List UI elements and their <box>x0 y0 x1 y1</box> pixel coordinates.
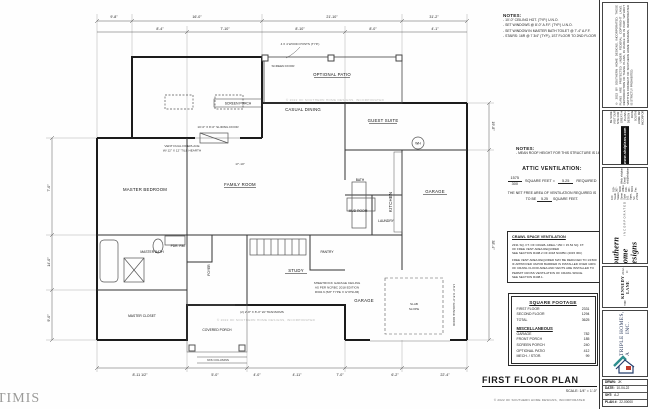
square-footage-title: SQUARE FOOTAGE <box>517 300 590 305</box>
note-sliding-door: 10'-0" X 8'-0" SLIDING DOOR <box>197 125 239 129</box>
watermark-text: © 2022 OF SOUTHERN HOME DESIGNS, INCORPO… <box>217 318 316 322</box>
water-heater-label: WH <box>415 142 421 146</box>
dim-label: 31'-2" <box>429 15 439 19</box>
info-value: A-2 <box>614 394 619 398</box>
dim-label: 7'-0" <box>336 373 344 377</box>
room-label-guest-suite: GUEST SUITE <box>368 118 399 123</box>
dimension-labels: 9'-8" 16'-0" 21'-10" 31'-2" 8'-4" 7'-10"… <box>47 15 495 377</box>
kitchen-island <box>352 182 366 228</box>
note-screen-door: SCREEN DOOR <box>271 64 295 68</box>
master-tub <box>100 240 118 282</box>
project-line-1: THE <box>623 300 627 306</box>
room-label-study: STUDY <box>288 268 304 273</box>
attic-denominator: 300 <box>512 182 518 187</box>
crawl-paragraph: FREE VENT AREA REQUIRED MAY BE REDUCED T… <box>512 258 598 275</box>
info-label: PLAN #: <box>605 401 617 405</box>
interior-walls <box>97 103 467 305</box>
sqft-value: 99 <box>586 354 590 360</box>
sqft-label: TOTAL <box>517 318 528 324</box>
notes-block-top: NOTES: - 10'-0" CEILING HGT. (TYP.) U.N.… <box>503 13 598 39</box>
info-row: PLAN #: 22-00000 <box>603 399 647 406</box>
room-label-kitchen: KITCHEN <box>388 192 393 212</box>
room-label-master-bedroom: MASTER BEDROOM <box>123 187 167 192</box>
attic-net-text-2: SQUARE FEET. <box>553 197 578 201</box>
note-posts: 4 X 4 WOOD POSTS (TYP.) <box>281 42 320 46</box>
attic-fraction: 1575 300 <box>508 176 522 186</box>
room-label-screen-porch: SCREEN PORCH <box>225 102 252 106</box>
note-garage-door: 18'-0" X 8'-0" GARAGE DOOR <box>452 284 456 327</box>
attic-net-value: 5.25 <box>537 197 552 202</box>
designer-address-1: 100 South Salem Street Suite 101 Apex, N… <box>611 193 639 200</box>
sqft-row: MECH. / STOR. 99 <box>517 354 590 360</box>
square-footage-box: SQUARE FOOTAGE FIRST FLOOR 2331 SECOND F… <box>508 293 598 366</box>
note-sheetrock-2: AS PER NCRBC 2018 EDITION <box>315 286 359 290</box>
kitchen-counter <box>394 152 402 232</box>
room-label-optional-patio: OPTIONAL PATIO <box>313 72 351 77</box>
room-label-powder: PDR. RM. <box>171 244 186 248</box>
note-transoms: (2) 2'-8" X 8'-0" W/ TRANSOMS <box>240 310 284 314</box>
sheet-title: FIRST FLOOR PLAN <box>482 375 597 387</box>
room-label-laundry: LAUNDRY <box>378 219 394 223</box>
sheet-copyright: © 2022 OF SOUTHERN HOME DESIGNS, INCORPO… <box>482 398 597 402</box>
room-label-pantry: PANTRY <box>320 250 334 254</box>
note-item: - STAIRS: 16R @ 7 3/4" (TYP.), 1ST FLOOR… <box>503 34 598 39</box>
dim-label: 6'-2" <box>391 373 399 377</box>
attic-calc-label: SQUARE FEET = <box>525 179 555 183</box>
room-label-master-closet: MASTER CLOSET <box>128 314 156 318</box>
room-label-garage: GARAGE <box>425 189 445 194</box>
slab-slope-area <box>385 278 443 334</box>
dim-label: 16'-0" <box>192 15 202 19</box>
note-slab-1: SLAB <box>410 302 418 306</box>
info-row: DATE: 10-04-22 <box>603 385 647 392</box>
crawl-space-ventilation-box: CRAWL SPACE VENTILATION 2331 SQ. FT. OF … <box>507 231 603 283</box>
dim-label: 8'-11 1/2" <box>133 373 149 377</box>
note-fireplace-1: VENT DUAL FIREPLACE <box>164 144 199 148</box>
room-label-covered-porch: COVERED PORCH <box>202 328 232 332</box>
crawl-line-4: SEE SECTION R408.1. <box>512 275 598 279</box>
dim-label: 7'-10" <box>220 27 230 31</box>
dim-label: 9'-0" <box>47 314 51 322</box>
attic-ventilation-block: ATTIC VENTILATION: 1575 300 SQUARE FEET … <box>507 166 597 203</box>
corner-watermark: TIMIS <box>0 391 40 407</box>
sqft-row: TOTAL 3625 <box>517 318 590 324</box>
attic-result: 5.25 <box>558 179 573 184</box>
room-labels: SCREEN PORCH OPTIONAL PATIO CASUAL DININ… <box>123 72 447 332</box>
room-label-family-room: FAMILY ROOM <box>224 182 256 187</box>
sqft-label: MECH. / STOR. <box>517 354 542 360</box>
plan-annotations: 4 X 4 WOOD POSTS (TYP.) SCREEN DOOR 10'-… <box>163 42 456 362</box>
drawing-sheet: 9'-8" 16'-0" 21'-10" 31'-2" 8'-4" 7'-10"… <box>0 0 650 409</box>
website-box: Hey, visit us @ www.shdplans.com BE SURE… <box>602 110 648 165</box>
dim-label: 19'-8" <box>491 121 495 131</box>
dim-label: 9'-8" <box>110 15 118 19</box>
info-label: SHT: <box>605 394 612 398</box>
designer-logo-text: Southern Home Designs <box>612 237 639 264</box>
note-slab-2: SLOPE <box>409 307 419 311</box>
note-sheetrock-1: SHEETROCK GARAGE CEILING <box>314 281 361 285</box>
attic-ventilation-calc: 1575 300 SQUARE FEET = 5.25 REQUIRED <box>507 176 597 186</box>
info-value: 22-00000 <box>619 401 632 405</box>
note-fireplace-2: W/ 12" X 12" TILE HEARTH <box>163 149 201 153</box>
porch-column <box>239 345 245 351</box>
room-label-foyer: FOYER <box>207 264 211 276</box>
note-columns: 6X6 COLUMNS <box>207 358 229 362</box>
dim-label: 38'-4" <box>491 240 495 250</box>
dim-label: 8'-0" <box>369 27 377 31</box>
exterior-walls <box>97 57 467 340</box>
optional-patio-outline <box>262 55 402 103</box>
crawl-title: CRAWL SPACE VENTILATION <box>512 235 598 241</box>
disclaimer-text: © 2022 BY SOUTHERN HOME DESIGNS, INCORPO… <box>616 5 635 105</box>
project-box: THE KENNEDY LANE 2012-D <box>602 266 648 308</box>
dim-label: 21'-10" <box>326 15 338 19</box>
attic-required: REQUIRED <box>576 179 596 183</box>
dim-label: 8'-10" <box>295 27 305 31</box>
info-value: JK <box>618 381 622 385</box>
builder-name-2: HOMES, INC. <box>619 312 631 335</box>
project-line-2: KENNEDY LANE <box>620 277 630 300</box>
skylight <box>165 95 193 109</box>
note-item: - MEAN ROOF HEIGHT FOR THIS STRUCTURE IS… <box>516 151 598 156</box>
room-label-master-bath: MASTER BATH <box>140 250 164 254</box>
dim-label: 14'-0" <box>47 257 51 267</box>
website-badge: www.shdplans.com <box>621 126 629 165</box>
notes-block-mid: NOTES: - MEAN ROOF HEIGHT FOR THIS STRUC… <box>516 146 598 156</box>
note-family-dim: 17'-10" <box>235 162 245 166</box>
dim-label: 8'-4" <box>156 27 164 31</box>
copyright-disclaimer-box: © 2022 BY SOUTHERN HOME DESIGNS, INCORPO… <box>602 2 648 108</box>
project-line-3: 2012-D <box>621 268 629 275</box>
dim-label: 22'-4" <box>440 373 450 377</box>
dim-label: 5'-0" <box>211 373 219 377</box>
designer-box: Southern Home Designs INCORPORATED 100 S… <box>602 167 648 264</box>
room-label-casual-dining: CASUAL DINING <box>285 107 321 112</box>
title-block-strip: © 2022 BY SOUTHERN HOME DESIGNS, INCORPO… <box>599 0 650 409</box>
info-label: DRWN: <box>605 381 616 385</box>
designer-address-2: 919-367-6000 Office 919-367-6001 Fax <box>613 185 638 192</box>
crawl-line-3: SEE SECTION R408.2 OF 2018 NCRBC (2015 I… <box>512 251 598 255</box>
info-table: DRWN: JK DATE: 10-04-22 SHT: A-2 PLAN #:… <box>602 379 648 407</box>
info-value: 10-04-22 <box>617 387 630 391</box>
sheet-scale: SCALE: 1/4" = 1'-0" <box>482 389 597 393</box>
dim-label: 4'-11" <box>293 373 303 377</box>
fixtures <box>100 95 443 363</box>
dim-label: 7'-0" <box>47 184 51 192</box>
dim-label: 4'-1" <box>431 27 439 31</box>
website-note: BE SURE AND VISIT OUR WEB SITE FOR MORE … <box>610 110 640 125</box>
watermark-text: © 2022 OF SOUTHERN HOME DESIGNS, INCORPO… <box>286 98 385 102</box>
builder-box: TRIPLE A HOMES, INC. <box>602 310 648 377</box>
info-row: SHT: A-2 <box>603 392 647 399</box>
builder-logo-icon <box>613 353 637 375</box>
designer-address-3: Web: shdplans.com Email: shd@shdplans.co… <box>620 167 629 184</box>
room-label-guest-bath: BATH <box>356 178 365 182</box>
porch-column <box>189 345 195 351</box>
room-label-garage-bay: GARAGE <box>354 298 374 303</box>
info-label: DATE: <box>605 387 615 391</box>
designer-sub: INCORPORATED <box>624 201 627 236</box>
sheet-title-block: FIRST FLOOR PLAN SCALE: 1/4" = 1'-0" © 2… <box>482 375 597 402</box>
sqft-value: 3625 <box>582 318 590 324</box>
room-label-mud-room: MUD ROOM <box>349 209 368 213</box>
miscellaneous-title: MISCELLANEOUS <box>517 326 590 331</box>
attic-net-line: THE NET FREE AREA OF VENTILATION REQUIRE… <box>507 191 597 203</box>
dim-label: 4'-0" <box>253 373 261 377</box>
attic-ventilation-title: ATTIC VENTILATION: <box>507 166 597 172</box>
note-sheetrock-3: R302.6 (5/8" TYPE X GYPSUM) <box>315 290 359 294</box>
